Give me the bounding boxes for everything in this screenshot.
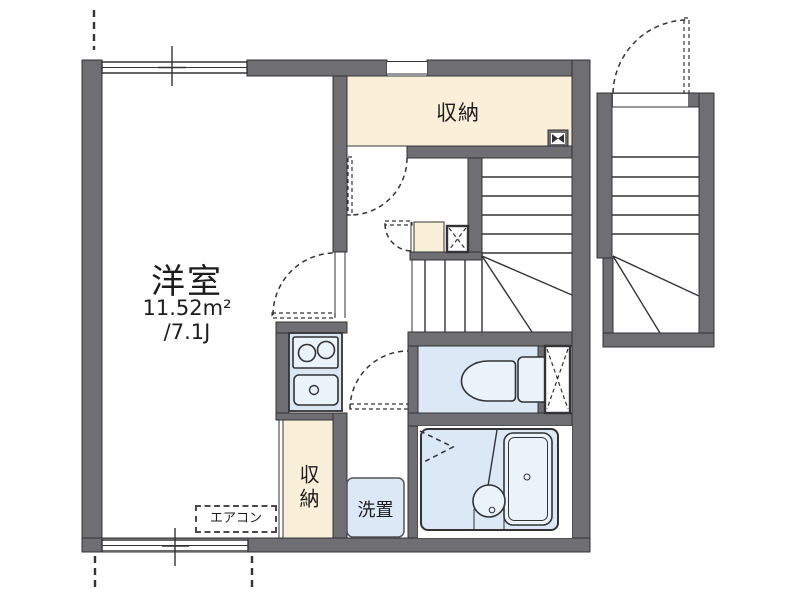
window-small-top bbox=[387, 61, 427, 75]
washbasin-icon bbox=[473, 485, 505, 517]
bathtub-icon bbox=[504, 433, 552, 525]
closet-top-label: 収納 bbox=[388, 97, 528, 127]
air-conditioner-label: エアコン bbox=[195, 505, 277, 533]
shaft-box bbox=[447, 226, 468, 252]
closet-lower-label: 収納 bbox=[286, 438, 330, 538]
laundry-space-label: 洗置 bbox=[347, 496, 404, 522]
kitchen-sink-icon bbox=[294, 375, 338, 405]
meter-box-icon bbox=[551, 133, 565, 144]
entry-door-arc bbox=[613, 20, 687, 93]
small-cabinet bbox=[411, 222, 444, 252]
closet-top-door-arc bbox=[350, 158, 407, 215]
entry-door-opening bbox=[613, 94, 688, 107]
main-room-door-arc bbox=[273, 253, 335, 315]
window-bottom bbox=[102, 528, 248, 566]
pipe-space bbox=[545, 346, 570, 413]
toilet-icon bbox=[462, 357, 549, 402]
cabinet-door-arc bbox=[385, 224, 412, 251]
kitchen-unit bbox=[289, 333, 342, 411]
washroom-door-arc bbox=[350, 351, 408, 409]
window-top bbox=[102, 46, 247, 86]
staircase-external bbox=[612, 157, 699, 333]
floor-plan: 洋室 11.52m² /7.1J 収納 収納 洗置 エアコン bbox=[0, 0, 800, 608]
main-room-area-sqm: 11.52m² bbox=[117, 296, 257, 320]
bathroom bbox=[418, 426, 572, 538]
main-room-area-tatami: /7.1J bbox=[117, 320, 257, 344]
